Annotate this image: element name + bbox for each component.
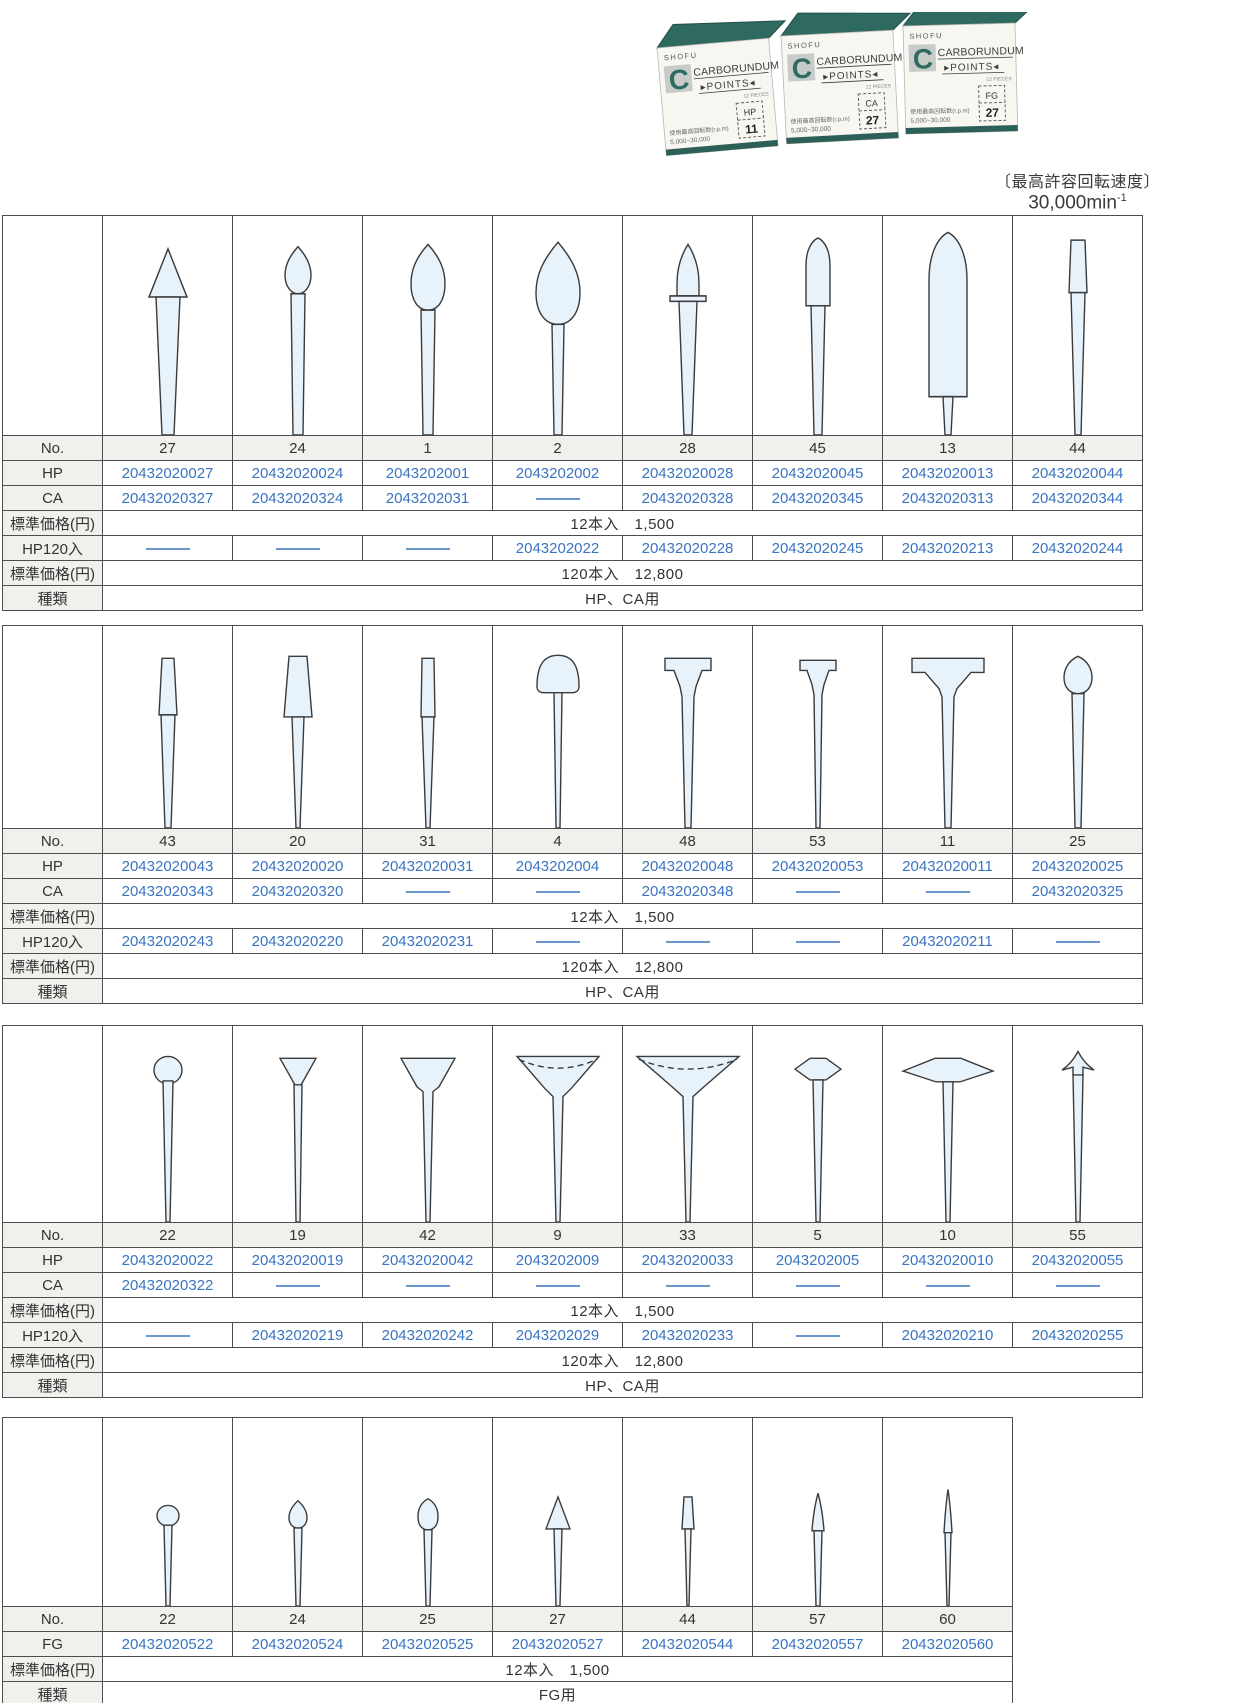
shape-cell-no-24 [233, 216, 363, 436]
no-code-dash [796, 1285, 840, 1287]
product-boxes-image: SHOFUCCARBORUNDUM▸POINTS◂12 PIECESHP11使用… [645, 12, 1050, 192]
ca-code-cell: 20432020327 [103, 486, 233, 511]
order-code: 20432020033 [642, 1252, 734, 1269]
fg-code-cell: 20432020524 [233, 1632, 363, 1657]
table-row-price12: 標準価格(円)12本入 1,500 [3, 1298, 1143, 1323]
point-shape-fg-egg-icon [363, 1418, 493, 1606]
hp120-code-cell: 20432020242 [363, 1323, 493, 1348]
ca-code-cell: 20432020320 [233, 879, 363, 904]
hp120-code-cell: 20432020244 [1013, 536, 1143, 561]
point-shape-wheel-wide-icon [883, 1026, 1013, 1222]
table-row-price120: 標準価格(円)120本入 12,800 [3, 954, 1143, 979]
point-shape-bullet-narrow-icon [753, 216, 883, 435]
ca-code-cell [233, 1273, 363, 1298]
shape-cell-no-22 [103, 1418, 233, 1607]
price120-cell: 120本入 12,800 [103, 561, 1143, 586]
no-value: 19 [233, 1223, 363, 1248]
shape-cell-no-42 [363, 1026, 493, 1223]
hp-code-cell: 20432020043 [103, 854, 233, 879]
hp120-code-cell: 20432020255 [1013, 1323, 1143, 1348]
order-code: 20432020560 [902, 1636, 994, 1653]
no-value: 25 [1013, 829, 1143, 854]
no-code-dash [926, 1285, 970, 1287]
no-code-dash [1056, 941, 1100, 943]
row-label-ca: CA [3, 1273, 103, 1298]
points-table-1: No.27241228451344HP204320200272043202002… [2, 215, 1143, 611]
order-code: 20432020211 [902, 933, 993, 950]
box-logo-c-icon: C [668, 63, 691, 96]
max-speed-label: 〔最高許容回転速度〕 [995, 174, 1160, 192]
order-code: 2043202004 [516, 858, 599, 875]
order-code: 20432020010 [902, 1252, 994, 1269]
hp120-code-cell [753, 929, 883, 954]
shape-cell-no-43 [103, 626, 233, 829]
order-code: 20432020244 [1032, 540, 1124, 557]
table-row-ca: CA20432020327204320203242043202031204320… [3, 486, 1143, 511]
point-shape-hollow-cup-xwide-icon [623, 1026, 753, 1222]
row-label-no: No. [3, 1223, 103, 1248]
hp-code-cell: 20432020045 [753, 461, 883, 486]
point-shape-taper-cylinder-icon [1013, 216, 1143, 435]
row-label-price120: 標準価格(円) [3, 1348, 103, 1373]
order-code: 20432020325 [1032, 883, 1124, 900]
no-value: 25 [363, 1607, 493, 1632]
no-value: 43 [103, 829, 233, 854]
order-code: 20432020020 [252, 858, 344, 875]
no-value: 57 [753, 1607, 883, 1632]
no-code-dash [926, 891, 970, 893]
point-shape-ball-icon [103, 1026, 233, 1222]
hp-code-cell: 20432020044 [1013, 461, 1143, 486]
ca-code-cell [1013, 1273, 1143, 1298]
order-code: 20432020544 [642, 1636, 734, 1653]
hp-code-cell: 20432020042 [363, 1248, 493, 1273]
row-label-kind: 種類 [3, 1373, 103, 1398]
no-value: 60 [883, 1607, 1013, 1632]
no-value: 2 [493, 436, 623, 461]
shape-cell-no-2 [493, 216, 623, 436]
order-code: 20432020348 [642, 883, 734, 900]
box-note-line2: 5,000~30,000 [910, 117, 950, 125]
hp-code-cell: 20432020024 [233, 461, 363, 486]
shape-cell-no-9 [493, 1026, 623, 1223]
shape-cell-no-57 [753, 1418, 883, 1607]
table-row-price120: 標準価格(円)120本入 12,800 [3, 561, 1143, 586]
order-code: 2043202031 [386, 490, 469, 507]
row-label-ca: CA [3, 879, 103, 904]
ca-code-cell: 20432020344 [1013, 486, 1143, 511]
product-box-1: SHOFUCCARBORUNDUM▸POINTS◂12 PIECESHP11使用… [655, 15, 796, 156]
no-code-dash [796, 941, 840, 943]
ca-code-cell [493, 879, 623, 904]
hp120-code-cell: 20432020210 [883, 1323, 1013, 1348]
no-value: 20 [233, 829, 363, 854]
box-type-number: 27 [866, 113, 880, 128]
fg-code-cell: 20432020525 [363, 1632, 493, 1657]
point-shape-taper-flat-narrow-icon [103, 626, 233, 828]
no-code-dash [536, 498, 580, 500]
kind-cell: HP、CA用 [103, 586, 1143, 611]
hp-code-cell: 20432020048 [623, 854, 753, 879]
product-table: No.22242527445760FG204320205222043202052… [2, 1417, 1013, 1703]
no-value: 1 [363, 436, 493, 461]
shape-cell-no-24 [233, 1418, 363, 1607]
hp-code-cell: 20432020053 [753, 854, 883, 879]
shape-cell-no-1 [363, 216, 493, 436]
order-code: 20432020210 [902, 1327, 994, 1344]
ca-code-cell [623, 1273, 753, 1298]
hp-code-cell: 20432020010 [883, 1248, 1013, 1273]
hp120-code-cell [493, 929, 623, 954]
shape-row [3, 1418, 1013, 1607]
hp120-code-cell: 20432020211 [883, 929, 1013, 954]
no-code-dash [146, 548, 190, 550]
no-value: 24 [233, 1607, 363, 1632]
ca-code-cell [493, 486, 623, 511]
row-label-kind: 種類 [3, 1682, 103, 1703]
ca-code-cell: 20432020343 [103, 879, 233, 904]
fg-code-cell: 20432020557 [753, 1632, 883, 1657]
kind-cell: HP、CA用 [103, 979, 1143, 1004]
hp120-code-cell: 20432020245 [753, 536, 883, 561]
point-shape-cone-small-icon [103, 216, 233, 435]
order-code: 20432020022 [122, 1252, 214, 1269]
ca-code-cell: 20432020313 [883, 486, 1013, 511]
order-code: 20432020527 [512, 1636, 604, 1653]
point-shape-t-flat-icon [623, 626, 753, 828]
shape-cell-no-19 [233, 1026, 363, 1223]
shape-cell-no-13 [883, 216, 1013, 436]
ca-code-cell [363, 1273, 493, 1298]
hp-code-cell: 20432020031 [363, 854, 493, 879]
shape-cell-no-31 [363, 626, 493, 829]
product-table: No.22194293351055HP204320200222043202001… [2, 1025, 1143, 1398]
table-row-no: No.27241228451344 [3, 436, 1143, 461]
order-code: 20432020213 [902, 540, 994, 557]
order-code: 20432020220 [252, 933, 344, 950]
product-table: No.27241228451344HP204320200272043202002… [2, 215, 1143, 611]
box-product-sub: ▸POINTS◂ [944, 61, 1000, 73]
price12-cell: 12本入 1,500 [103, 1657, 1013, 1682]
row-label-price12: 標準価格(円) [3, 511, 103, 536]
row-label-hp120: HP120入 [3, 536, 103, 561]
hp-code-cell: 20432020027 [103, 461, 233, 486]
shape-cell-no-27 [493, 1418, 623, 1607]
hp-code-cell: 2043202004 [493, 854, 623, 879]
no-code-dash [276, 548, 320, 550]
no-code-dash [796, 1335, 840, 1337]
no-value: 42 [363, 1223, 493, 1248]
order-code: 20432020219 [252, 1327, 344, 1344]
point-shape-t-small-icon [753, 626, 883, 828]
hp-code-cell: 20432020033 [623, 1248, 753, 1273]
shape-row-spacer [3, 626, 103, 829]
shape-cell-no-10 [883, 1026, 1013, 1223]
shape-row-spacer [3, 1026, 103, 1223]
hp120-code-cell [1013, 929, 1143, 954]
hp120-code-cell [623, 929, 753, 954]
no-code-dash [406, 1285, 450, 1287]
ca-code-cell: 20432020328 [623, 486, 753, 511]
no-code-dash [1056, 1285, 1100, 1287]
ca-code-cell: 20432020345 [753, 486, 883, 511]
catalog-page: SHOFUCCARBORUNDUM▸POINTS◂12 PIECESHP11使用… [0, 0, 1250, 1703]
row-label-hp: HP [3, 461, 103, 486]
fg-code-cell: 20432020527 [493, 1632, 623, 1657]
price12-cell: 12本入 1,500 [103, 1298, 1143, 1323]
box-logo-c-icon: C [791, 52, 813, 84]
ca-code-cell: 20432020348 [623, 879, 753, 904]
table-row-price12: 標準価格(円)12本入 1,500 [3, 1657, 1013, 1682]
shape-cell-no-25 [1013, 626, 1143, 829]
table-row-fg: FG20432020522204320205242043202052520432… [3, 1632, 1013, 1657]
no-value: 24 [233, 436, 363, 461]
hp120-code-cell [103, 536, 233, 561]
point-shape-t-wide-icon [883, 626, 1013, 828]
order-code: 20432020525 [382, 1636, 474, 1653]
hp120-code-cell: 20432020220 [233, 929, 363, 954]
table-row-hp120: HP120入2043202024320432020220204320202312… [3, 929, 1143, 954]
order-code: 20432020228 [642, 540, 734, 557]
fg-code-cell: 20432020522 [103, 1632, 233, 1657]
points-table-4: No.22242527445760FG204320205222043202052… [2, 1417, 1013, 1703]
table-row-price12: 標準価格(円)12本入 1,500 [3, 511, 1143, 536]
shape-cell-no-25 [363, 1418, 493, 1607]
row-label-hp: HP [3, 1248, 103, 1273]
order-code: 20432020024 [252, 465, 344, 482]
point-shape-flame-point-icon [623, 216, 753, 435]
table-row-ca: CA20432020343204320203202043202034820432… [3, 879, 1143, 904]
box-pieces-text: 12 PIECES [986, 76, 1012, 83]
no-value: 22 [103, 1223, 233, 1248]
box-brand-text: SHOFU [787, 40, 821, 51]
ca-code-cell [883, 879, 1013, 904]
ca-code-cell: 20432020324 [233, 486, 363, 511]
row-label-hp120: HP120入 [3, 929, 103, 954]
points-table-2: No.432031448531125HP20432020043204320200… [2, 625, 1143, 1004]
table-row-kind: 種類FG用 [3, 1682, 1013, 1703]
point-shape-bud-round-icon [1013, 626, 1143, 828]
order-code: 20432020031 [382, 858, 474, 875]
order-code: 20432020557 [772, 1636, 864, 1653]
hp-code-cell: 20432020019 [233, 1248, 363, 1273]
hp-code-cell: 20432020028 [623, 461, 753, 486]
point-shape-arrow-point-icon [1013, 1026, 1143, 1222]
box-logo-c-icon: C [912, 43, 933, 75]
ca-code-cell: 2043202031 [363, 486, 493, 511]
hp-code-cell: 2043202009 [493, 1248, 623, 1273]
shape-row [3, 626, 1143, 829]
no-value: 27 [103, 436, 233, 461]
ca-code-cell [883, 1273, 1013, 1298]
ca-code-cell: 20432020325 [1013, 879, 1143, 904]
box-type-code: CA [865, 98, 878, 109]
order-code: 20432020027 [122, 465, 214, 482]
no-code-dash [666, 1285, 710, 1287]
max-speed-value: 30,000min-1 [995, 192, 1160, 214]
shape-cell-no-20 [233, 626, 363, 829]
row-label-price12: 標準価格(円) [3, 1298, 103, 1323]
order-code: 20432020524 [252, 1636, 344, 1653]
point-shape-inverted-cone-small-icon [233, 1026, 363, 1222]
hp-code-cell: 20432020022 [103, 1248, 233, 1273]
order-code: 20432020044 [1032, 465, 1124, 482]
order-code: 20432020025 [1032, 858, 1124, 875]
point-shape-fg-point-icon [753, 1418, 883, 1606]
order-code: 2043202005 [776, 1252, 859, 1269]
kind-cell: FG用 [103, 1682, 1013, 1703]
hp120-code-cell: 20432020233 [623, 1323, 753, 1348]
hp120-code-cell [103, 1323, 233, 1348]
point-shape-fg-bud-icon [233, 1418, 363, 1606]
no-value: 13 [883, 436, 1013, 461]
ca-code-cell [493, 1273, 623, 1298]
table-row-hp: HP20432020022204320200192043202004220432… [3, 1248, 1143, 1273]
no-code-dash [666, 941, 710, 943]
order-code: 20432020324 [252, 490, 344, 507]
row-label-kind: 種類 [3, 979, 103, 1004]
order-code: 20432020313 [902, 490, 994, 507]
hp120-code-cell [753, 1323, 883, 1348]
product-table: No.432031448531125HP20432020043204320200… [2, 625, 1143, 1004]
row-label-no: No. [3, 436, 103, 461]
shape-cell-no-44 [623, 1418, 753, 1607]
row-label-no: No. [3, 1607, 103, 1632]
shape-cell-no-5 [753, 1026, 883, 1223]
price12-cell: 12本入 1,500 [103, 511, 1143, 536]
points-table-3: No.22194293351055HP204320200222043202001… [2, 1025, 1143, 1398]
hp-code-cell: 2043202005 [753, 1248, 883, 1273]
no-code-dash [536, 891, 580, 893]
table-row-price12: 標準価格(円)12本入 1,500 [3, 904, 1143, 929]
order-code: 20432020013 [902, 465, 994, 482]
ca-code-cell [753, 1273, 883, 1298]
shape-row-spacer [3, 1418, 103, 1607]
product-box-2: SHOFUCCARBORUNDUM▸POINTS◂12 PIECESCA27使用… [780, 12, 917, 144]
point-shape-teardrop-medium-icon [363, 216, 493, 435]
table-row-kind: 種類HP、CA用 [3, 979, 1143, 1004]
hp-code-cell: 20432020020 [233, 854, 363, 879]
price120-cell: 120本入 12,800 [103, 1348, 1143, 1373]
point-shape-mushroom-round-icon [493, 626, 623, 828]
row-label-hp: HP [3, 854, 103, 879]
hp-code-cell: 20432020013 [883, 461, 1013, 486]
point-shape-bud-small-icon [233, 216, 363, 435]
point-shape-fg-cone-icon [493, 1418, 623, 1606]
table-row-hp: HP20432020027204320200242043202001204320… [3, 461, 1143, 486]
order-code: 20432020320 [252, 883, 344, 900]
hp120-code-cell: 20432020213 [883, 536, 1013, 561]
price120-cell: 120本入 12,800 [103, 954, 1143, 979]
order-code: 20432020048 [642, 858, 734, 875]
row-label-ca: CA [3, 486, 103, 511]
row-label-fg: FG [3, 1632, 103, 1657]
row-label-kind: 種類 [3, 586, 103, 611]
table-row-price120: 標準価格(円)120本入 12,800 [3, 1348, 1143, 1373]
hp-code-cell: 20432020011 [883, 854, 1013, 879]
no-value: 45 [753, 436, 883, 461]
hp120-code-cell: 20432020228 [623, 536, 753, 561]
order-code: 20432020322 [122, 1277, 214, 1294]
point-shape-torpedo-large-icon [883, 216, 1013, 435]
row-label-no: No. [3, 829, 103, 854]
box-type-number: 11 [744, 122, 758, 137]
order-code: 20432020242 [382, 1327, 474, 1344]
point-shape-cylinder-narrow-icon [363, 626, 493, 828]
shape-cell-no-27 [103, 216, 233, 436]
no-code-dash [796, 891, 840, 893]
no-value: 9 [493, 1223, 623, 1248]
product-box-3: SHOFUCCARBORUNDUM▸POINTS◂12 PIECESFG27使用… [902, 12, 1035, 134]
order-code: 20432020522 [122, 1636, 214, 1653]
table-row-hp120: HP120入2043202022204320202282043202024520… [3, 536, 1143, 561]
hp120-code-cell: 2043202029 [493, 1323, 623, 1348]
order-code: 20432020019 [252, 1252, 344, 1269]
point-shape-fg-needle-icon [883, 1418, 1013, 1606]
ca-code-cell [753, 879, 883, 904]
point-shape-fg-taper-icon [623, 1418, 753, 1606]
shape-cell-no-60 [883, 1418, 1013, 1607]
shape-cell-no-53 [753, 626, 883, 829]
table-row-no: No.432031448531125 [3, 829, 1143, 854]
hp120-code-cell [233, 536, 363, 561]
no-value: 11 [883, 829, 1013, 854]
table-row-kind: 種類HP、CA用 [3, 1373, 1143, 1398]
shape-cell-no-28 [623, 216, 753, 436]
no-value: 4 [493, 829, 623, 854]
no-value: 22 [103, 1607, 233, 1632]
fg-code-cell: 20432020544 [623, 1632, 753, 1657]
order-code: 20432020245 [772, 540, 864, 557]
ca-code-cell [363, 879, 493, 904]
hp120-code-cell: 20432020219 [233, 1323, 363, 1348]
row-label-price120: 標準価格(円) [3, 954, 103, 979]
order-code: 20432020055 [1032, 1252, 1124, 1269]
no-value: 33 [623, 1223, 753, 1248]
order-code: 20432020328 [642, 490, 734, 507]
shape-cell-no-45 [753, 216, 883, 436]
shape-row [3, 1026, 1143, 1223]
hp-code-cell: 2043202002 [493, 461, 623, 486]
shape-cell-no-55 [1013, 1026, 1143, 1223]
row-label-price12: 標準価格(円) [3, 904, 103, 929]
no-value: 28 [623, 436, 753, 461]
no-code-dash [276, 1285, 320, 1287]
no-value: 10 [883, 1223, 1013, 1248]
order-code: 20432020231 [382, 933, 474, 950]
shape-cell-no-4 [493, 626, 623, 829]
row-label-price12: 標準価格(円) [3, 1657, 103, 1682]
table-row-hp120: HP120入2043202021920432020242204320202920… [3, 1323, 1143, 1348]
table-row-ca: CA20432020322 [3, 1273, 1143, 1298]
fg-code-cell: 20432020560 [883, 1632, 1013, 1657]
box-brand-text: SHOFU [909, 31, 943, 41]
order-code: 20432020327 [122, 490, 214, 507]
no-value: 55 [1013, 1223, 1143, 1248]
shape-cell-no-11 [883, 626, 1013, 829]
table-row-kind: 種類HP、CA用 [3, 586, 1143, 611]
point-shape-hollow-cup-wide-icon [493, 1026, 623, 1222]
kind-cell: HP、CA用 [103, 1373, 1143, 1398]
order-code: 20432020344 [1032, 490, 1124, 507]
shape-cell-no-48 [623, 626, 753, 829]
max-speed-note: 〔最高許容回転速度〕 30,000min-1 [995, 174, 1160, 215]
table-row-hp: HP20432020043204320200202043202003120432… [3, 854, 1143, 879]
order-code: 2043202002 [516, 465, 599, 482]
hp-code-cell: 2043202001 [363, 461, 493, 486]
box-type-code: HP [743, 107, 756, 118]
box-type-code: FG [985, 91, 998, 101]
